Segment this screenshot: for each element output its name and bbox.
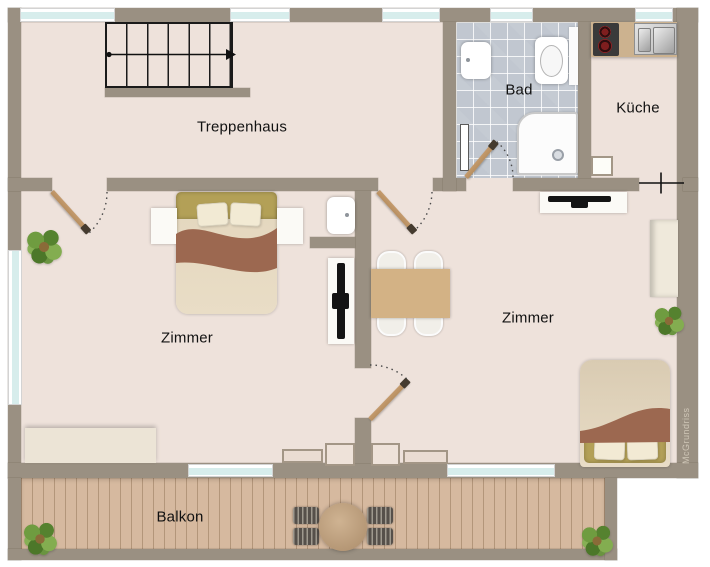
pillow bbox=[229, 202, 261, 227]
wall-basin-icon bbox=[327, 197, 355, 234]
sideboard bbox=[25, 428, 156, 463]
room-divider-wall-lower bbox=[355, 418, 371, 463]
basin-drain-dot bbox=[345, 213, 349, 217]
room-label-kueche: Küche bbox=[616, 100, 660, 117]
window-kitchen bbox=[635, 8, 673, 22]
balcony-rail-bottom bbox=[8, 549, 617, 560]
toilet-icon bbox=[461, 42, 491, 79]
bath-shelf bbox=[569, 27, 578, 85]
wall-recess bbox=[325, 443, 355, 466]
wall-recess bbox=[371, 443, 400, 466]
tv-sideboard-right bbox=[540, 192, 627, 213]
burner-small bbox=[599, 26, 611, 38]
bathroom-wall-left bbox=[443, 22, 456, 191]
kitchen-wall-niche bbox=[591, 156, 613, 176]
wall-stub bbox=[310, 237, 355, 248]
stair-landing-edge bbox=[105, 88, 250, 97]
staircase bbox=[105, 22, 233, 88]
stove-icon bbox=[593, 23, 619, 56]
room-divider-wall-upper bbox=[355, 191, 371, 368]
balcony-chair bbox=[367, 528, 393, 545]
room-label-bad: Bad bbox=[505, 82, 532, 99]
balcony-round-table bbox=[319, 503, 367, 551]
toilet-flush-dot bbox=[466, 58, 470, 62]
balcony-chair bbox=[293, 507, 319, 524]
balcony-chair bbox=[367, 507, 393, 524]
washbasin-icon bbox=[535, 37, 568, 84]
interior-wall bbox=[107, 178, 378, 191]
plant-icon bbox=[25, 228, 63, 266]
tv-board-left bbox=[328, 258, 354, 344]
plant-icon bbox=[22, 521, 58, 557]
window-left-room bbox=[8, 250, 22, 405]
window-top-3 bbox=[382, 8, 440, 22]
interior-wall bbox=[683, 178, 698, 191]
kitchen-sink-icon bbox=[634, 23, 677, 55]
radiator-icon bbox=[403, 450, 448, 464]
floor-plan: Treppenhaus Bad Küche Zimmer Zimmer Balk… bbox=[0, 0, 710, 567]
radiator-icon bbox=[282, 449, 323, 463]
tv-mount bbox=[571, 199, 588, 208]
pillow bbox=[594, 438, 626, 460]
basin-bowl bbox=[540, 45, 563, 77]
window-bottom-right bbox=[447, 464, 555, 477]
room-label-balkon: Balkon bbox=[156, 509, 203, 526]
pillow bbox=[627, 438, 659, 460]
window-top-2 bbox=[230, 8, 290, 22]
balcony-chair bbox=[293, 528, 319, 545]
tv-mount bbox=[332, 293, 349, 309]
nightstand-left bbox=[151, 208, 177, 244]
shower-icon bbox=[517, 112, 578, 175]
sink-basin-small bbox=[638, 28, 651, 52]
burner-large bbox=[598, 39, 612, 53]
room-label-zimmer-links: Zimmer bbox=[161, 330, 213, 347]
interior-wall bbox=[8, 178, 52, 191]
plant-icon bbox=[580, 524, 614, 558]
nightstand-right bbox=[277, 208, 303, 244]
wardrobe bbox=[650, 220, 678, 297]
window-bottom-left bbox=[188, 464, 273, 477]
wall-left bbox=[8, 8, 21, 478]
pillow bbox=[196, 202, 229, 227]
room-label-treppenhaus: Treppenhaus bbox=[197, 119, 287, 136]
interior-wall bbox=[513, 178, 639, 191]
watermark-text: McGrundriss bbox=[681, 404, 699, 468]
window-bathroom bbox=[490, 8, 533, 22]
dining-table bbox=[371, 269, 450, 318]
plant-icon bbox=[653, 305, 685, 337]
room-label-zimmer-rechts: Zimmer bbox=[502, 310, 554, 327]
sink-basin-large bbox=[653, 27, 675, 54]
bathroom-wall-right bbox=[578, 22, 591, 178]
towel-radiator-icon bbox=[460, 124, 469, 171]
window-top-1 bbox=[20, 8, 115, 22]
balcony-rail-left bbox=[8, 478, 21, 560]
